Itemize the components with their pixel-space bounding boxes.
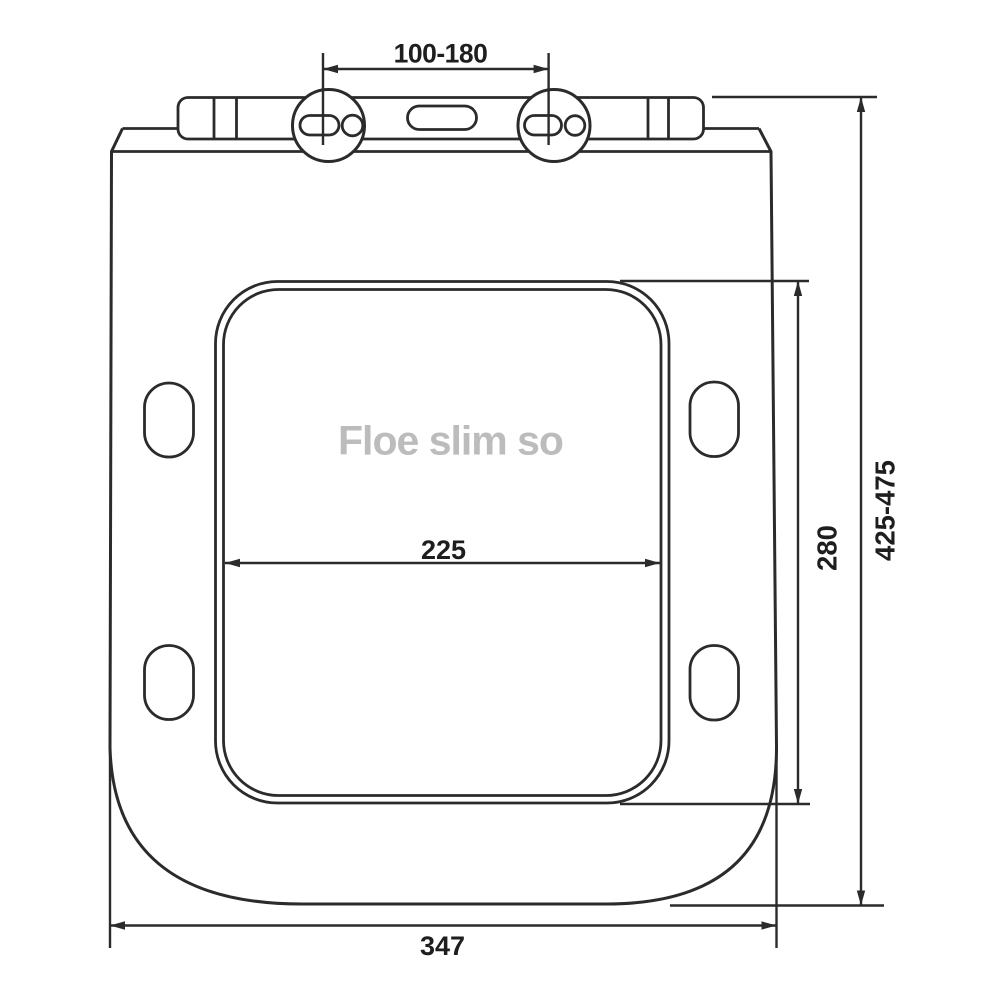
svg-text:Floe slim so: Floe slim so xyxy=(338,418,563,464)
svg-text:347: 347 xyxy=(420,931,465,961)
svg-text:100-180: 100-180 xyxy=(394,39,488,69)
svg-text:280: 280 xyxy=(812,525,843,571)
svg-text:225: 225 xyxy=(421,535,466,565)
svg-text:425-475: 425-475 xyxy=(870,460,901,561)
